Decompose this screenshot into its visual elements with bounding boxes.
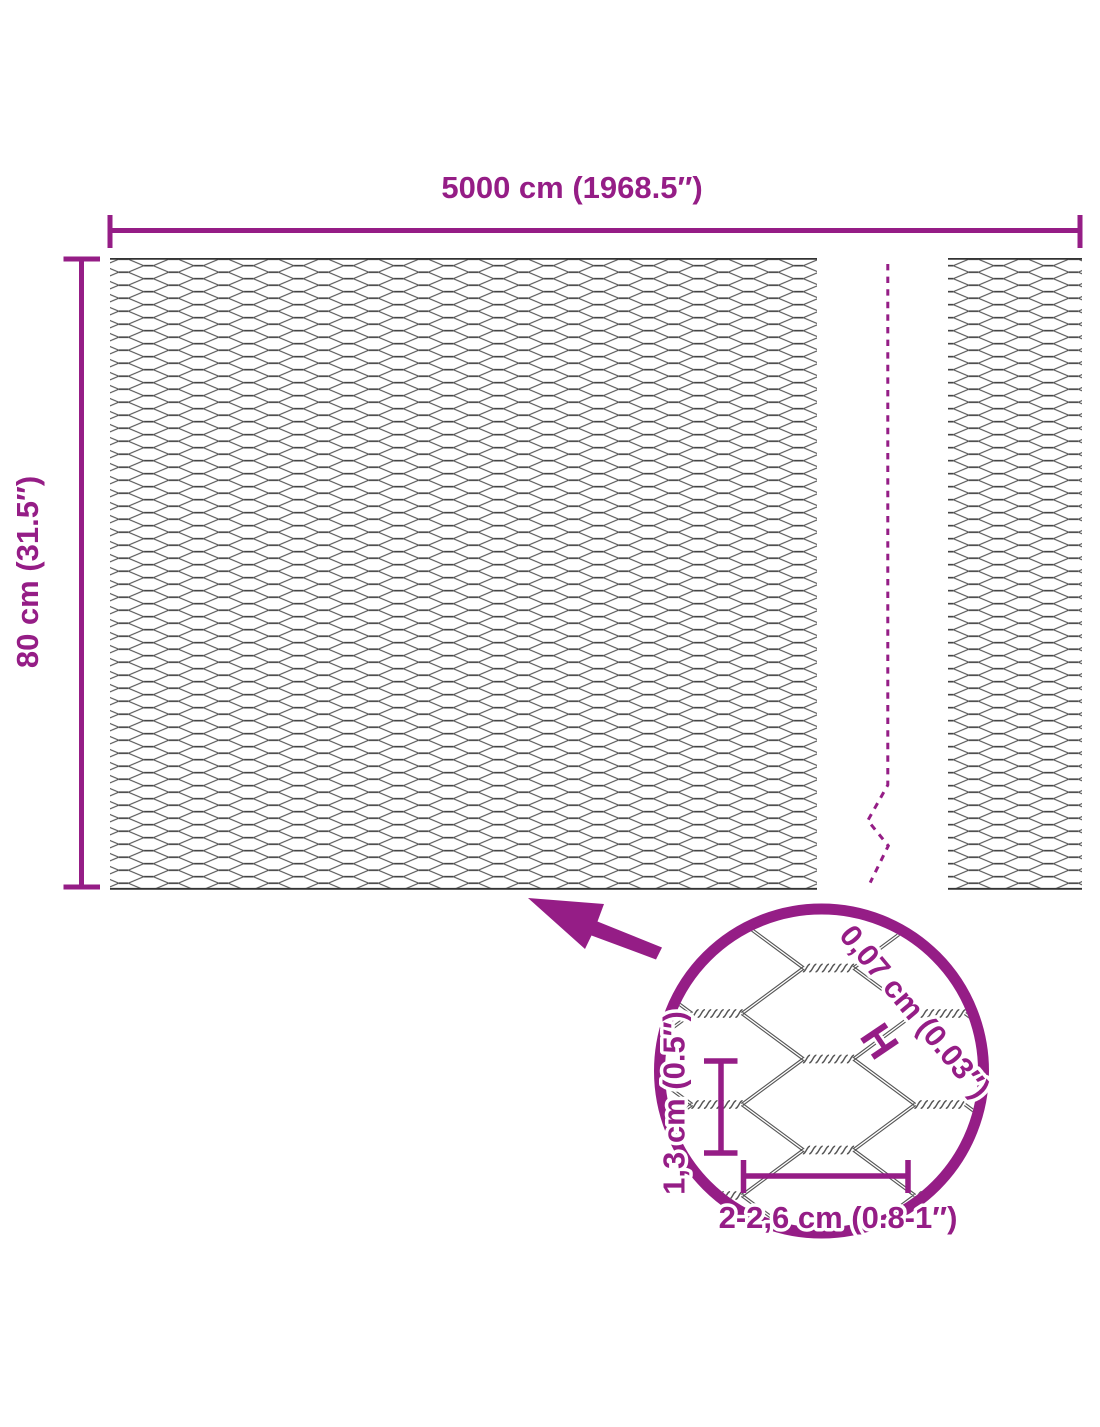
svg-text:1,3 cm (0.5″): 1,3 cm (0.5″) xyxy=(657,1011,692,1195)
svg-text:5000 cm (1968.5″): 5000 cm (1968.5″) xyxy=(441,170,702,205)
svg-text:2-2,6 cm (0.8-1″): 2-2,6 cm (0.8-1″) xyxy=(719,1200,958,1235)
svg-text:80 cm (31.5″): 80 cm (31.5″) xyxy=(10,476,45,668)
